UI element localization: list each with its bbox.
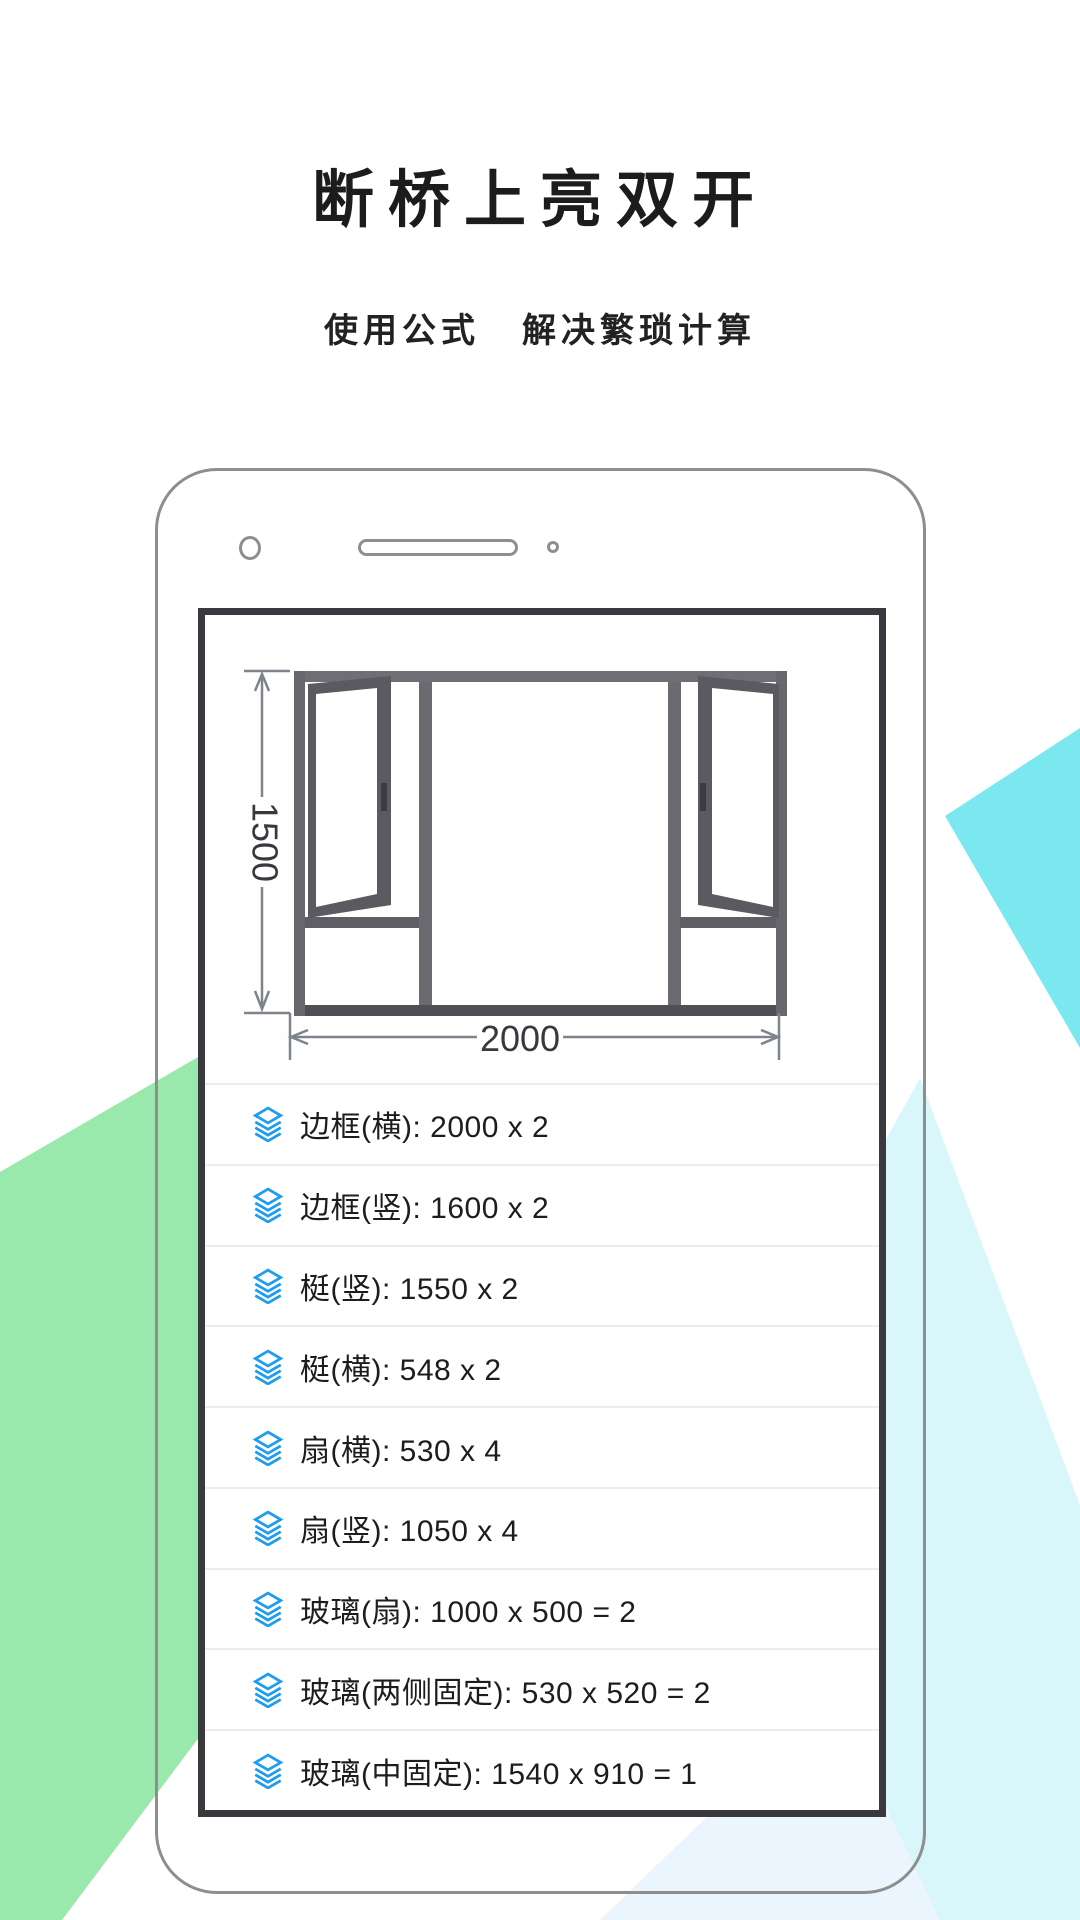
layers-icon <box>252 1753 284 1789</box>
page: 断桥上亮双开 使用公式 解决繁琐计算 1500 <box>0 0 1080 1920</box>
layers-icon <box>252 1430 284 1466</box>
height-label: 1500 <box>244 802 285 882</box>
list-item[interactable]: 扇(横): 530 x 4 <box>205 1406 879 1487</box>
left-sash-handle-icon <box>381 783 387 811</box>
cyan-bright-polygon <box>945 728 1080 1048</box>
subtitle-left: 使用公式 <box>324 312 480 352</box>
list-item-label: 扇(横): 530 x 4 <box>300 1426 502 1470</box>
right-sash <box>698 676 779 918</box>
list-item-label: 梃(横): 548 x 2 <box>300 1345 502 1389</box>
width-label: 2000 <box>480 1018 560 1059</box>
list-item-label: 梃(竖): 1550 x 2 <box>300 1264 519 1308</box>
list-item[interactable]: 玻璃(中固定): 1540 x 910 = 1 <box>205 1729 879 1810</box>
window-diagram: 1500 <box>205 615 879 1083</box>
page-title: 断桥上亮双开 <box>0 168 1080 234</box>
list-item-label: 玻璃(中固定): 1540 x 910 = 1 <box>300 1749 698 1793</box>
list-item[interactable]: 边框(横): 2000 x 2 <box>205 1083 879 1164</box>
layers-icon <box>252 1106 284 1142</box>
earpiece-speaker-icon <box>358 539 518 556</box>
page-subtitle: 使用公式 解决繁琐计算 <box>0 312 1080 352</box>
layers-icon <box>252 1510 284 1546</box>
window-frame <box>294 671 787 1016</box>
list-item[interactable]: 玻璃(扇): 1000 x 500 = 2 <box>205 1568 879 1649</box>
layers-icon <box>252 1268 284 1304</box>
subtitle-right: 解决繁琐计算 <box>522 312 756 352</box>
layers-icon <box>252 1187 284 1223</box>
list-item-label: 扇(竖): 1050 x 4 <box>300 1506 519 1550</box>
list-item[interactable]: 玻璃(两侧固定): 530 x 520 = 2 <box>205 1648 879 1729</box>
list-item[interactable]: 梃(横): 548 x 2 <box>205 1325 879 1406</box>
left-sash <box>308 676 391 918</box>
list-item-label: 边框(横): 2000 x 2 <box>300 1102 549 1146</box>
list-item-label: 玻璃(扇): 1000 x 500 = 2 <box>300 1587 637 1631</box>
list-item-label: 玻璃(两侧固定): 530 x 520 = 2 <box>300 1668 711 1712</box>
list-item[interactable]: 扇(竖): 1050 x 4 <box>205 1487 879 1568</box>
layers-icon <box>252 1349 284 1385</box>
list-item[interactable]: 梃(竖): 1550 x 2 <box>205 1245 879 1326</box>
height-dimension: 1500 <box>244 671 290 1060</box>
layers-icon <box>252 1672 284 1708</box>
right-sash-handle-icon <box>700 783 706 811</box>
front-camera-icon <box>239 536 261 560</box>
width-dimension: 2000 <box>291 1013 779 1060</box>
measurement-list: 边框(横): 2000 x 2 边框(竖): 1600 x 2 梃(竖): 15… <box>205 1083 879 1810</box>
list-item[interactable]: 边框(竖): 1600 x 2 <box>205 1164 879 1245</box>
proximity-sensor-icon <box>547 541 559 553</box>
layers-icon <box>252 1591 284 1627</box>
list-item-label: 边框(竖): 1600 x 2 <box>300 1183 549 1227</box>
